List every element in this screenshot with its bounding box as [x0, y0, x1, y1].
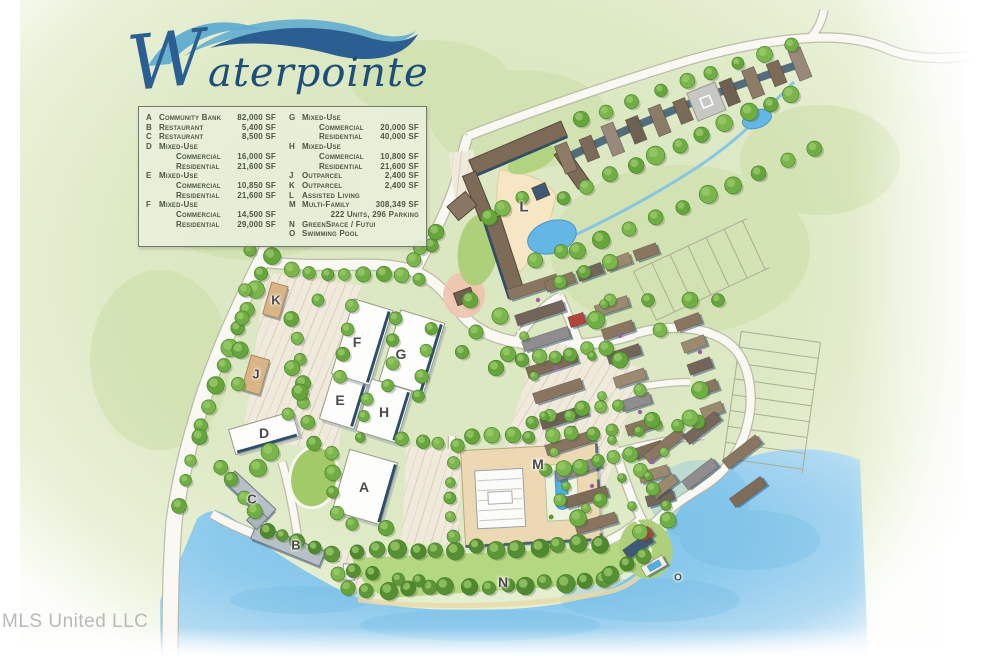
legend-letter: D [146, 142, 159, 152]
legend-letter [289, 152, 302, 162]
legend-name: Commercial [159, 181, 232, 191]
map-marker-d: D [259, 425, 269, 441]
map-marker-l: L [519, 199, 528, 216]
right-fade [850, 0, 984, 656]
legend-letter [289, 123, 302, 133]
legend-value [232, 171, 276, 181]
legend-name: Multi-Family [302, 200, 375, 210]
legend-name: Mixed-Use [159, 200, 232, 210]
legend-value: 16,000 SF [232, 152, 276, 162]
legend-value [375, 220, 419, 230]
legend-row: JOutparcel2,400 SF [289, 171, 419, 181]
legend-row: 222 Units, 296 Parking [289, 210, 419, 220]
legend-letter [146, 152, 159, 162]
legend-row: EMixed-Use [146, 171, 276, 181]
map-marker-c: C [247, 492, 256, 507]
legend-row: Residential21,600 SF [289, 162, 419, 172]
parcel-legend: ACommunity Bank82,000 SFBRestaurant5,400… [138, 106, 427, 247]
legend-row: Commercial16,000 SF [146, 152, 276, 162]
legend-value: 21,600 SF [232, 191, 276, 201]
legend-letter: O [289, 229, 302, 239]
map-marker-o: O [674, 573, 682, 584]
legend-row: Commercial10,800 SF [289, 152, 419, 162]
legend-name: Mixed-Use [302, 113, 375, 123]
legend-name: Assisted Living [302, 191, 375, 201]
map-marker-k: K [271, 293, 280, 308]
legend-row: LAssisted Living [289, 191, 419, 201]
waterpointe-logo: W aterpointe [114, 2, 434, 106]
legend-name: Commercial [159, 152, 232, 162]
legend-name: Residential [159, 162, 232, 172]
legend-letter: B [146, 123, 159, 133]
legend-letter [146, 191, 159, 201]
legend-letter: A [146, 113, 159, 123]
legend-letter [289, 210, 302, 220]
legend-letter: E [146, 171, 159, 181]
legend-letter: F [146, 200, 159, 210]
legend-column-left: ACommunity Bank82,000 SFBRestaurant5,400… [146, 113, 276, 239]
legend-value: 21,600 SF [232, 162, 276, 172]
legend-name: Mixed-Use [159, 142, 232, 152]
legend-letter [289, 132, 302, 142]
legend-value [375, 191, 419, 201]
legend-letter: C [146, 132, 159, 142]
map-marker-g: G [396, 346, 407, 362]
legend-row: NGreenSpace / Future [289, 220, 419, 230]
legend-row: KOutparcel2,400 SF [289, 181, 419, 191]
legend-value: 8,500 SF [232, 132, 276, 142]
legend-letter: G [289, 113, 302, 123]
watermark: MLS United LLC [2, 611, 148, 633]
map-marker-h: H [379, 404, 389, 420]
map-marker-a: A [359, 479, 369, 495]
legend-value: 29,000 SF [232, 220, 276, 230]
legend-row: FMixed-Use [146, 200, 276, 210]
legend-row: Residential21,600 SF [146, 162, 276, 172]
map-marker-n: N [498, 574, 508, 590]
legend-row: Commercial20,000 SF [289, 123, 419, 133]
legend-row: Residential21,600 SF [146, 191, 276, 201]
legend-name: Mixed-Use [159, 171, 232, 181]
legend-row: DMixed-Use [146, 142, 276, 152]
legend-value [375, 229, 419, 239]
legend-letter: K [289, 181, 302, 191]
legend-row: Residential29,000 SF [146, 220, 276, 230]
legend-name: Residential [302, 132, 375, 142]
legend-letter [146, 162, 159, 172]
legend-letter [146, 181, 159, 191]
legend-value [232, 142, 276, 152]
legend-name: Community Bank [159, 113, 232, 123]
legend-name [302, 210, 331, 220]
legend-row: Commercial10,850 SF [146, 181, 276, 191]
legend-value [375, 113, 419, 123]
legend-value: 14,500 SF [232, 210, 276, 220]
legend-column-right: GMixed-UseCommercial20,000 SFResidential… [289, 113, 419, 239]
legend-row: GMixed-Use [289, 113, 419, 123]
legend-name: Residential [159, 191, 232, 201]
legend-row: Residential40,000 SF [289, 132, 419, 142]
legend-row: Commercial14,500 SF [146, 210, 276, 220]
legend-value [375, 142, 419, 152]
legend-row: HMixed-Use [289, 142, 419, 152]
map-marker-b: B [291, 538, 300, 553]
legend-row: CRestaurant8,500 SF [146, 132, 276, 142]
logo-word: aterpointe [208, 50, 429, 96]
legend-letter: L [289, 191, 302, 201]
legend-value [232, 200, 276, 210]
legend-value: 10,850 SF [232, 181, 276, 191]
map-marker-j: J [252, 367, 259, 382]
site-plan-page: W aterpointe ACommunity Bank82,000 SFBRe… [0, 0, 984, 656]
legend-value: 21,600 SF [375, 162, 419, 172]
legend-letter: M [289, 200, 302, 210]
legend-value: 2,400 SF [375, 171, 419, 181]
legend-name: Commercial [159, 210, 232, 220]
legend-value: 20,000 SF [375, 123, 419, 133]
legend-name: Outparcel [302, 181, 375, 191]
legend-name: Outparcel [302, 171, 375, 181]
legend-row: OSwimming Pool [289, 229, 419, 239]
legend-row: ACommunity Bank82,000 SF [146, 113, 276, 123]
legend-letter: H [289, 142, 302, 152]
legend-letter [146, 220, 159, 230]
legend-value: 82,000 SF [232, 113, 276, 123]
legend-name: Restaurant [159, 123, 232, 133]
legend-row: BRestaurant5,400 SF [146, 123, 276, 133]
map-marker-e: E [335, 392, 344, 408]
legend-name: GreenSpace / Future [302, 220, 375, 230]
legend-letter [146, 210, 159, 220]
legend-value: 5,400 SF [232, 123, 276, 133]
legend-name: Commercial [302, 152, 375, 162]
legend-name: Residential [159, 220, 232, 230]
map-marker-f: F [353, 334, 362, 350]
legend-letter: N [289, 220, 302, 230]
legend-value: 2,400 SF [375, 181, 419, 191]
legend-value: 10,800 SF [375, 152, 419, 162]
legend-value: 40,000 SF [375, 132, 419, 142]
legend-name: Swimming Pool [302, 229, 375, 239]
map-marker-m: M [532, 456, 544, 472]
legend-name: Commercial [302, 123, 375, 133]
legend-name: Mixed-Use [302, 142, 375, 152]
legend-row: MMulti-Family308,349 SF [289, 200, 419, 210]
legend-letter [289, 162, 302, 172]
legend-name: Residential [302, 162, 375, 172]
legend-name: Restaurant [159, 132, 232, 142]
legend-value: 222 Units, 296 Parking [331, 210, 419, 220]
logo-initial: W [123, 11, 216, 106]
legend-letter: J [289, 171, 302, 181]
legend-value: 308,349 SF [375, 200, 419, 210]
